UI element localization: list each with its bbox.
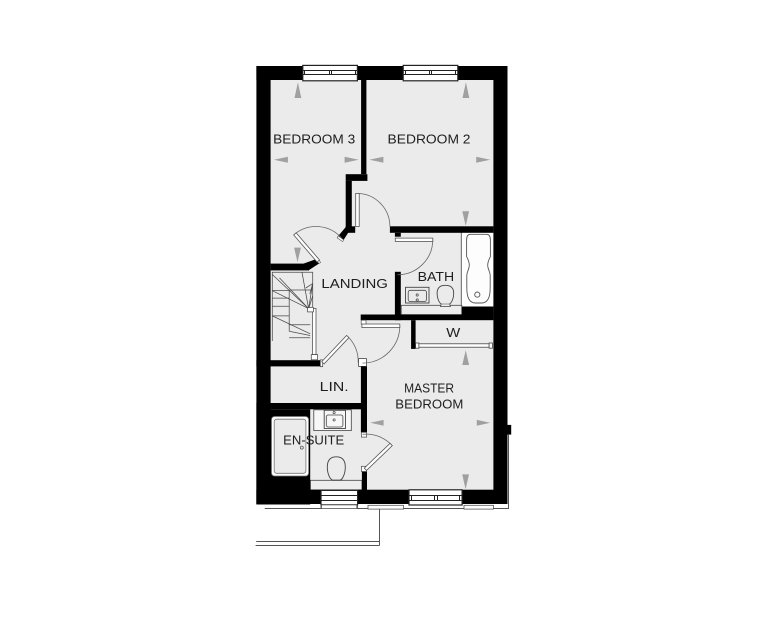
svg-text:BEDROOM: BEDROOM bbox=[395, 398, 463, 412]
svg-text:MASTER: MASTER bbox=[404, 382, 454, 396]
svg-text:BEDROOM 3: BEDROOM 3 bbox=[273, 133, 355, 147]
svg-text:W: W bbox=[446, 326, 460, 340]
svg-text:LIN.: LIN. bbox=[320, 380, 349, 394]
svg-text:LANDING: LANDING bbox=[321, 277, 388, 291]
svg-text:BEDROOM 2: BEDROOM 2 bbox=[388, 133, 471, 147]
svg-text:EN-SUITE: EN-SUITE bbox=[283, 433, 344, 447]
svg-text:BATH: BATH bbox=[418, 270, 455, 284]
